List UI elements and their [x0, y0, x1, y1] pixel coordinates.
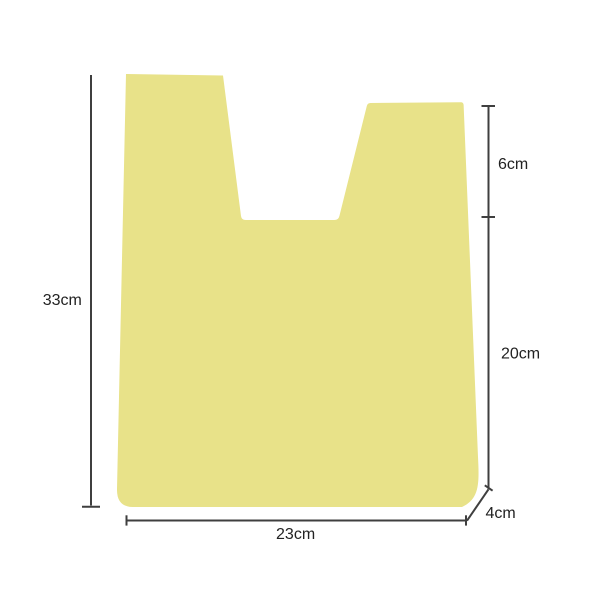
svg-text:4cm: 4cm [486, 505, 516, 522]
svg-text:6cm: 6cm [498, 156, 528, 173]
svg-text:33cm: 33cm [43, 292, 82, 309]
svg-text:20cm: 20cm [501, 345, 540, 362]
svg-text:23cm: 23cm [276, 526, 315, 543]
